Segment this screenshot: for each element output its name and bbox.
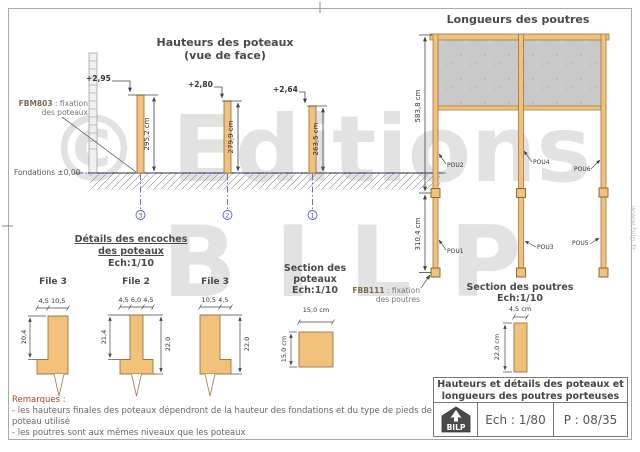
drawing-sheet: © Editions BILP bbox=[0, 0, 640, 452]
remarks-line-3: - les poutres sont aux mêmes niveaux que… bbox=[12, 428, 246, 438]
remarks-line-1: - les hauteurs finales des poteaux dépen… bbox=[12, 406, 432, 416]
beam-section-height: 22,0 cm bbox=[493, 334, 501, 360]
beam-label-pou4: POU4 bbox=[533, 159, 550, 166]
beam-plan-lower-dim: 310,4 cm bbox=[414, 218, 422, 251]
file-top-dims-1: 4,5 10,5 bbox=[39, 297, 66, 305]
elevation-title: Hauteurs des poteaux bbox=[156, 36, 293, 49]
website-watermark: www.bilp.fr bbox=[629, 206, 638, 251]
file-right-dim-3: 22,0 bbox=[243, 337, 251, 351]
notch-details bbox=[28, 305, 242, 397]
beam-label-pou2: POU2 bbox=[447, 162, 464, 169]
level-label-1: +2,95 bbox=[86, 74, 111, 83]
file-label-1: File 3 bbox=[39, 277, 67, 287]
file-label-3: File 3 bbox=[201, 277, 229, 287]
beam-fixation-text: : fixation bbox=[385, 286, 420, 295]
elevation-view: 3 2 1 bbox=[62, 53, 446, 220]
title-block-scale: Ech : 1/80 bbox=[478, 403, 554, 436]
beam-label-pou5: POU5 bbox=[572, 240, 589, 247]
beam-fixation-text2: des poutres bbox=[376, 295, 420, 304]
axis-bubble-1: 1 bbox=[310, 212, 314, 220]
beam-fixation-label: FBB111 : fixation des poutres bbox=[350, 286, 420, 304]
post-section-title: Section des bbox=[284, 263, 346, 274]
post-fixation-text: : fixation bbox=[53, 99, 88, 108]
beam-section-scale: Ech:1/10 bbox=[497, 293, 543, 304]
foundation-label: Fondations ±0,00 bbox=[14, 168, 80, 177]
details-scale: Ech:1/10 bbox=[108, 258, 154, 269]
file-top-dims-3: 10,5 4,5 bbox=[202, 296, 229, 304]
file-top-dims-2: 4,5 6,0 4,5 bbox=[118, 296, 153, 304]
axis-bubble-2: 2 bbox=[225, 212, 229, 220]
post-section-height: 15,0 cm bbox=[280, 336, 288, 362]
level-label-3: +2,64 bbox=[273, 85, 298, 94]
file-label-2: File 2 bbox=[122, 277, 150, 287]
beam-fixation-code: FBB111 bbox=[352, 286, 384, 295]
file-right-dim-2: 22,0 bbox=[164, 337, 172, 351]
title-block-line1: Hauteurs et détails des poteaux et bbox=[434, 379, 627, 391]
beam-label-pou3: POU3 bbox=[537, 244, 554, 251]
svg-text:BILP: BILP bbox=[446, 423, 465, 432]
axis-bubble-3: 3 bbox=[138, 212, 142, 220]
file-side-dim-2: 21,4 bbox=[100, 330, 108, 344]
beam-label-pou1: POU1 bbox=[447, 248, 464, 255]
title-block: Hauteurs et détails des poteaux et longu… bbox=[433, 377, 628, 437]
bilp-logo-icon: BILP bbox=[441, 406, 471, 434]
post-section-drawing bbox=[289, 320, 335, 368]
beam-label-pou6: POU6 bbox=[574, 166, 591, 173]
post-fixation-text2: des poteaux bbox=[42, 108, 88, 117]
fbb-leader bbox=[421, 275, 430, 288]
post-height-3: 263,5 cm bbox=[312, 123, 320, 156]
remarks-line-2: poteau utilisé bbox=[12, 417, 70, 427]
post-height-2: 279,9 cm bbox=[227, 121, 235, 154]
title-block-page: P : 08/35 bbox=[554, 403, 627, 436]
title-block-logo-cell: BILP bbox=[434, 403, 478, 436]
elevation-subtitle: (vue de face) bbox=[184, 49, 266, 62]
beam-plan-title: Longueurs des poutres bbox=[447, 13, 590, 26]
post-fixation-code: FBM803 bbox=[19, 99, 53, 108]
title-block-line2: longueurs des poutres porteuses bbox=[434, 391, 627, 403]
post-section-title2: poteaux bbox=[293, 274, 337, 285]
post-fixation-label: FBM803 : fixation des poteaux bbox=[16, 99, 88, 117]
details-title: Détails des encoches bbox=[75, 234, 188, 245]
post-section-width: 15,0 cm bbox=[303, 306, 329, 314]
remarks-heading: Remarques : bbox=[12, 395, 66, 405]
level-label-2: +2,80 bbox=[188, 80, 213, 89]
post-section-scale: Ech:1/10 bbox=[292, 285, 338, 296]
beam-plan-upper-dim: 583,8 cm bbox=[414, 90, 422, 123]
title-block-title: Hauteurs et détails des poteaux et longu… bbox=[434, 378, 627, 403]
beam-section-drawing bbox=[503, 315, 529, 373]
post-height-1: 295,2 cm bbox=[143, 118, 151, 151]
beam-section-title: Section des poutres bbox=[467, 282, 574, 293]
file-side-dim-1: 20,4 bbox=[20, 330, 28, 344]
beam-section-width: 4,5 cm bbox=[509, 305, 531, 313]
details-title2: des poteaux bbox=[98, 246, 164, 257]
